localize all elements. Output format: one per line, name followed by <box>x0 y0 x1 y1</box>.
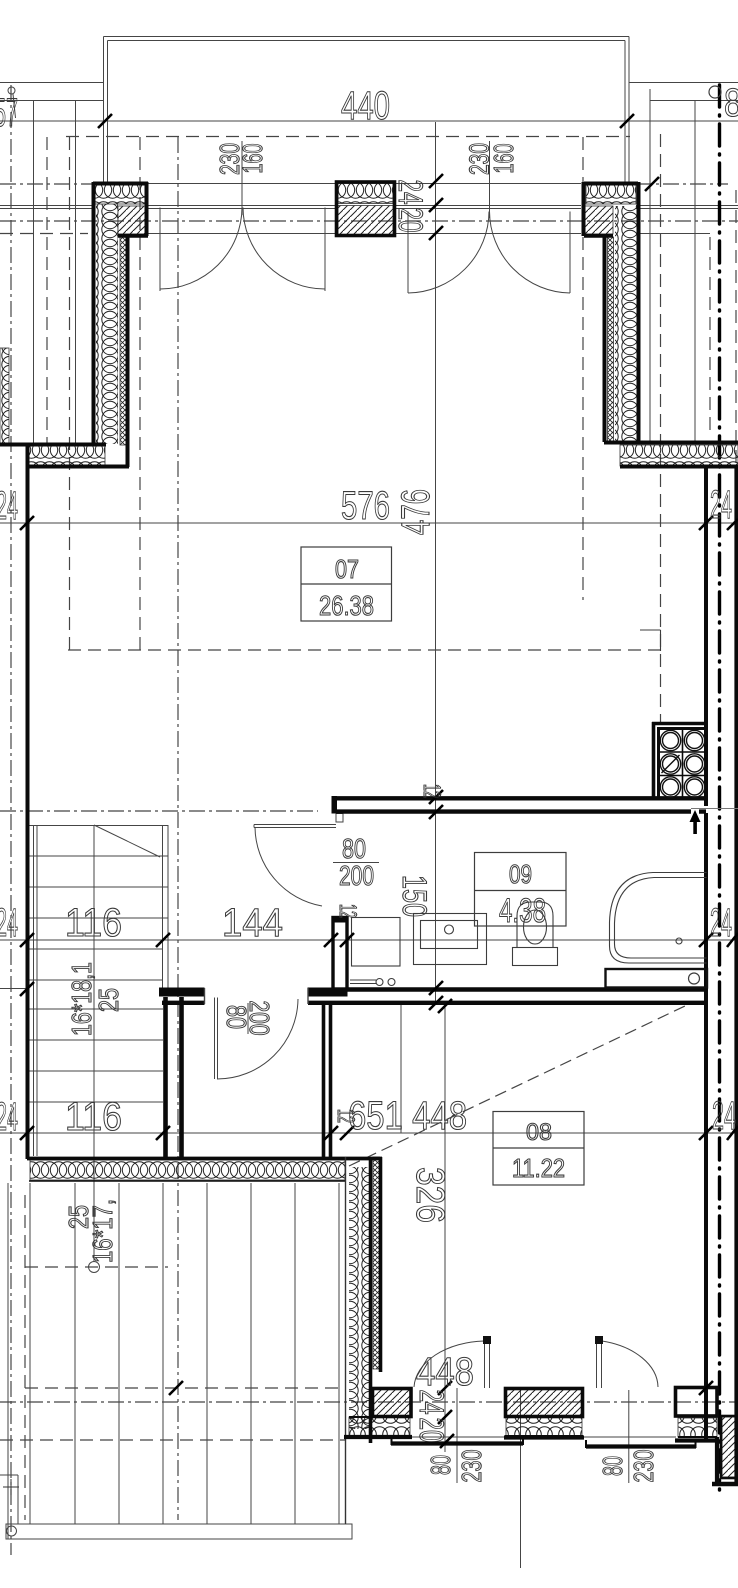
svg-text:08: 08 <box>526 1119 552 1146</box>
svg-text:24: 24 <box>710 901 732 945</box>
svg-text:476: 476 <box>394 489 438 535</box>
svg-text:25: 25 <box>93 988 124 1012</box>
svg-text:448: 448 <box>416 1350 474 1394</box>
svg-text:24: 24 <box>412 1390 450 1415</box>
svg-text:12: 12 <box>334 904 361 918</box>
svg-text:16*17,: 16*17, <box>87 1199 118 1263</box>
svg-text:116: 116 <box>65 1095 122 1139</box>
svg-text:200: 200 <box>339 860 374 891</box>
svg-text:651 448: 651 448 <box>348 1094 467 1138</box>
svg-text:144: 144 <box>222 901 283 945</box>
svg-text:24: 24 <box>712 1094 736 1138</box>
svg-text:576: 576 <box>341 484 390 528</box>
svg-text:160: 160 <box>488 144 519 174</box>
svg-text:326: 326 <box>408 1167 452 1223</box>
svg-text:150: 150 <box>395 875 433 917</box>
svg-text:24: 24 <box>0 901 18 945</box>
svg-text:24: 24 <box>710 483 732 527</box>
svg-text:09: 09 <box>509 859 532 889</box>
svg-text:11.22: 11.22 <box>512 1153 565 1183</box>
svg-text:57: 57 <box>0 91 18 135</box>
svg-text:80: 80 <box>597 1456 628 1476</box>
svg-text:24: 24 <box>0 484 18 528</box>
svg-text:24: 24 <box>391 180 429 205</box>
svg-text:07: 07 <box>335 554 359 584</box>
svg-text:80: 80 <box>425 1455 456 1475</box>
svg-text:200: 200 <box>244 1001 275 1036</box>
svg-text:20: 20 <box>412 1418 450 1443</box>
svg-text:116: 116 <box>65 901 122 945</box>
svg-text:8: 8 <box>724 81 738 125</box>
svg-text:4.38: 4.38 <box>499 892 546 930</box>
svg-text:440: 440 <box>341 84 390 128</box>
svg-text:230: 230 <box>456 1450 487 1483</box>
svg-text:26.38: 26.38 <box>319 590 374 621</box>
svg-text:12: 12 <box>418 784 445 798</box>
svg-text:160: 160 <box>237 144 268 174</box>
svg-text:20: 20 <box>391 208 429 233</box>
svg-text:230: 230 <box>628 1450 659 1483</box>
svg-text:24: 24 <box>0 1095 18 1139</box>
svg-text:12: 12 <box>332 1109 359 1123</box>
